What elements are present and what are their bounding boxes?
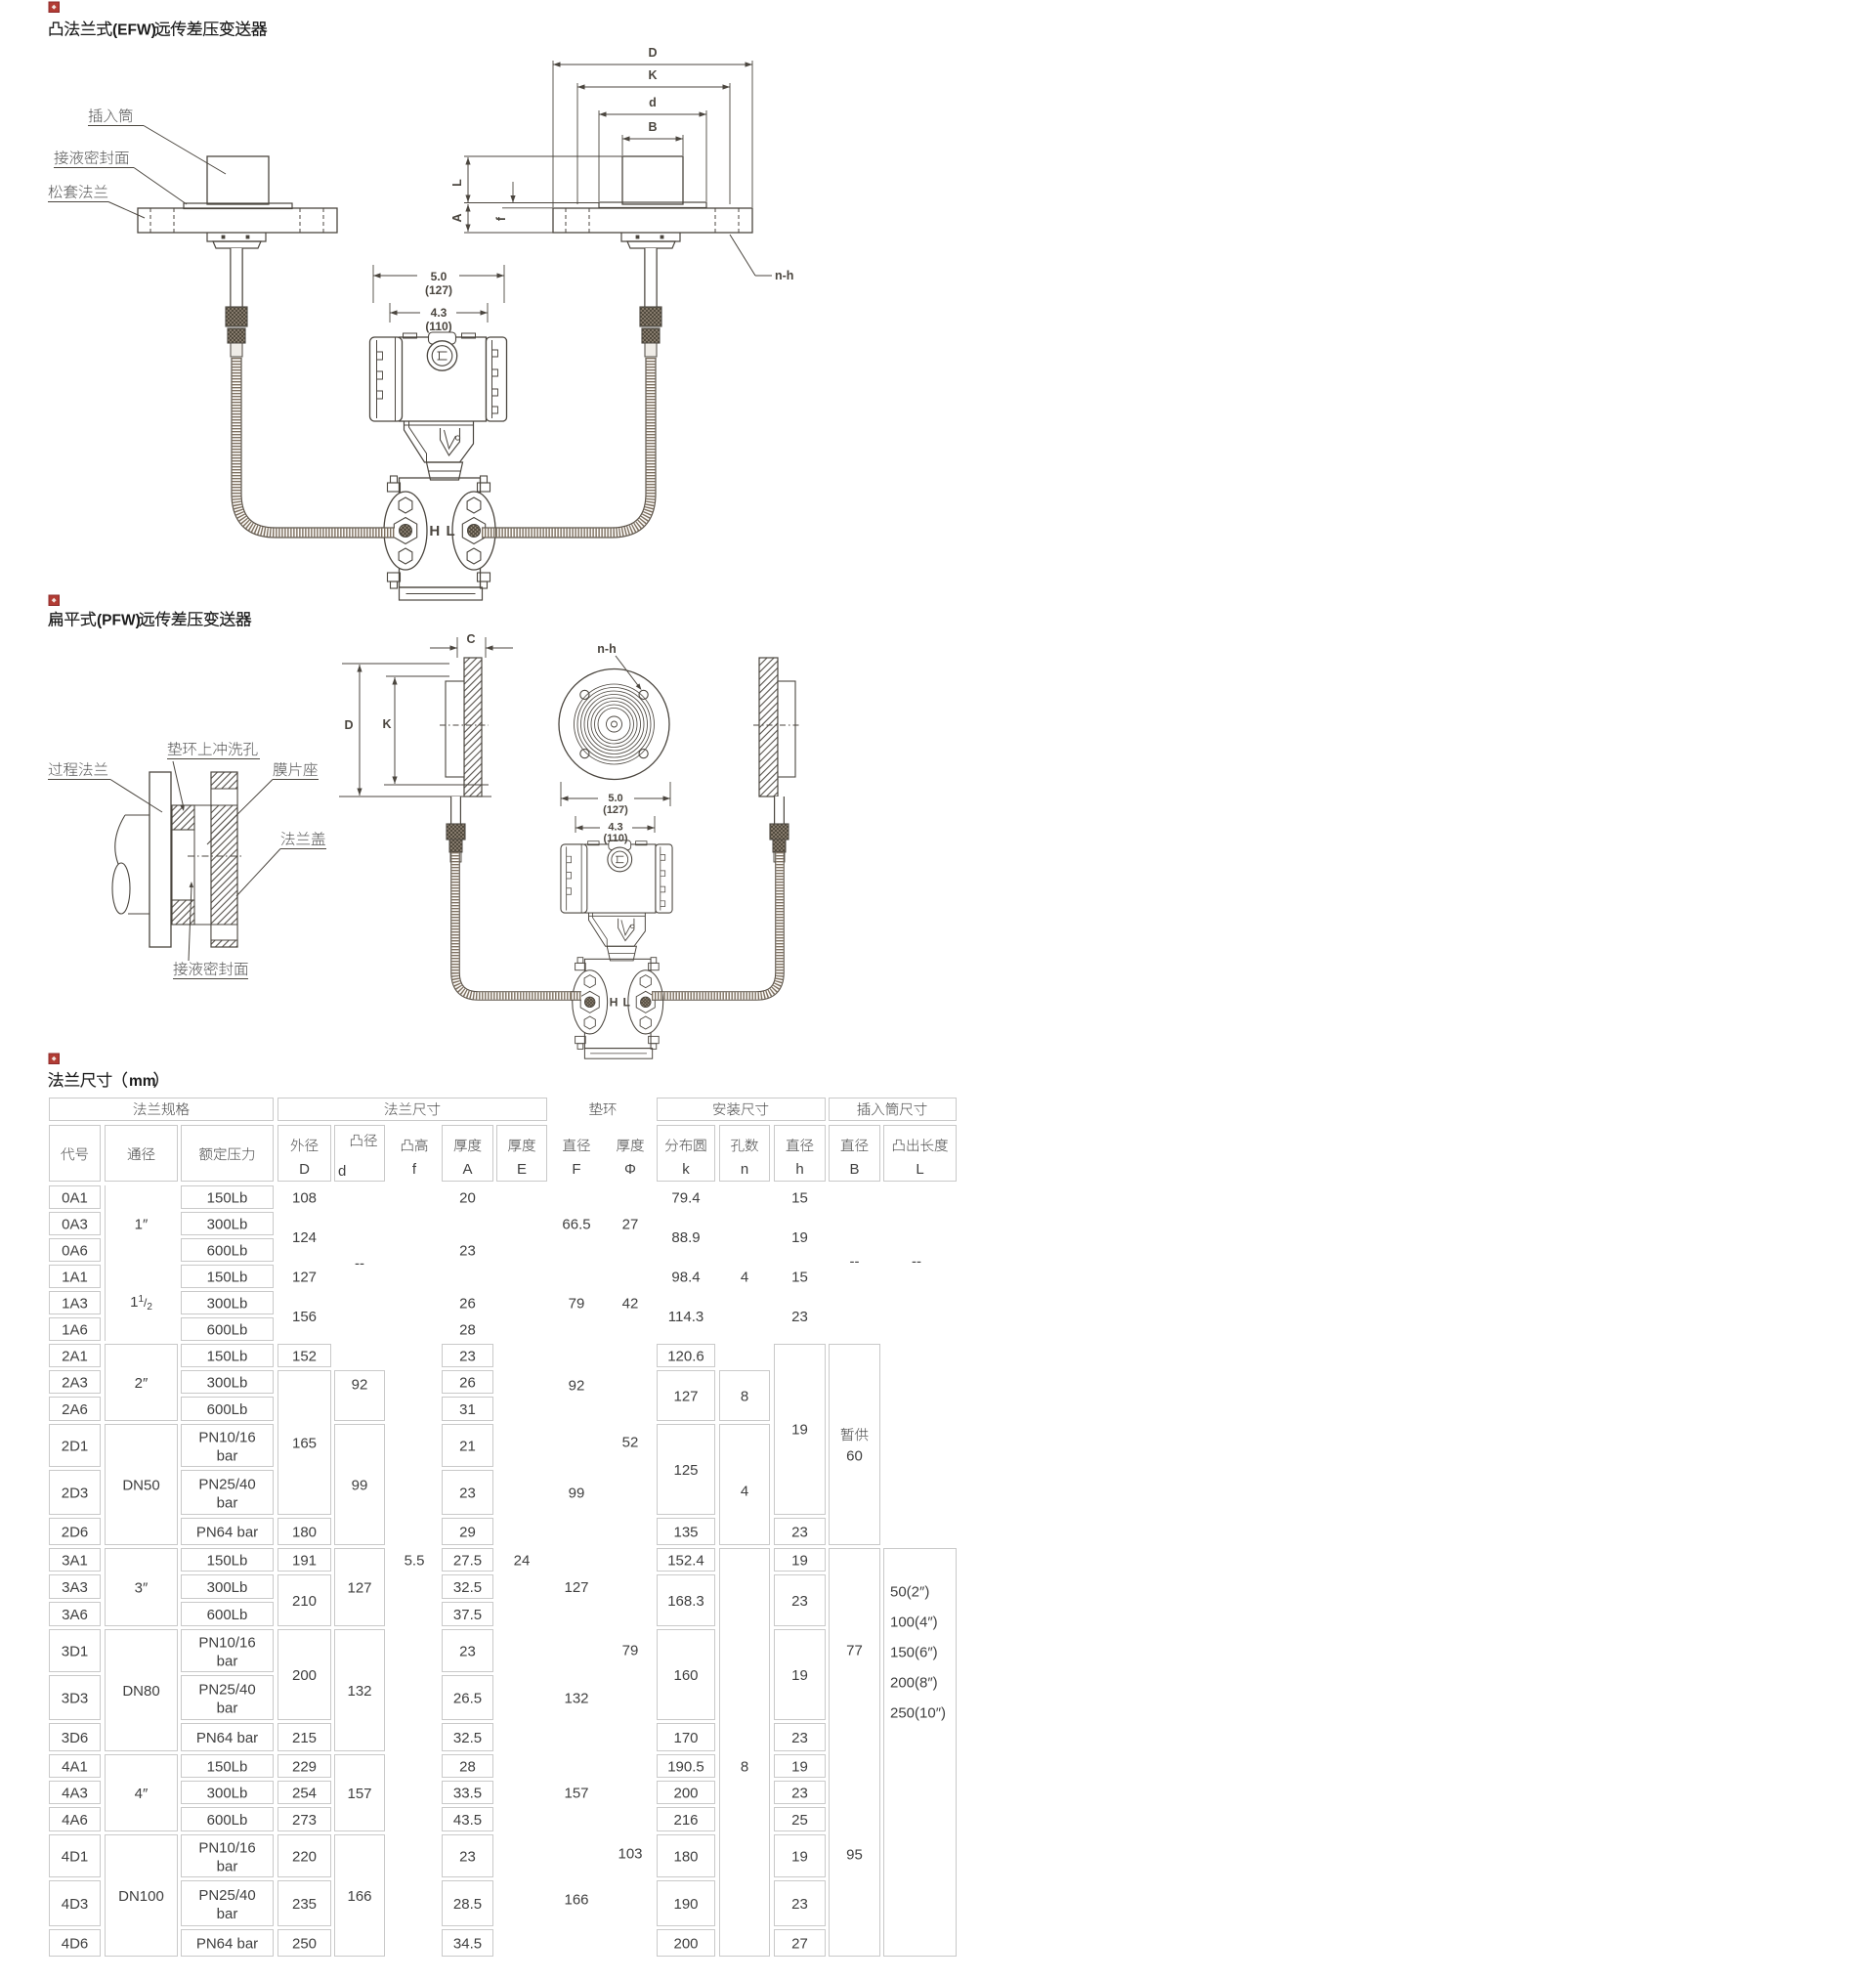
svg-text:152.4: 152.4 xyxy=(667,1552,704,1569)
svg-text:PN25/40: PN25/40 xyxy=(198,1681,255,1698)
svg-text:bar: bar xyxy=(217,1494,238,1511)
svg-text:4: 4 xyxy=(741,1269,748,1285)
svg-text:PN10/16: PN10/16 xyxy=(198,1429,255,1445)
svg-text:23: 23 xyxy=(459,1848,476,1865)
svg-text:Φ: Φ xyxy=(624,1161,636,1178)
svg-text:23: 23 xyxy=(791,1785,808,1801)
svg-text:3″: 3″ xyxy=(135,1579,149,1596)
svg-text:5.5: 5.5 xyxy=(405,1552,425,1569)
svg-text:98.4: 98.4 xyxy=(671,1269,700,1285)
svg-text:127: 127 xyxy=(673,1388,698,1404)
svg-text:H: H xyxy=(429,523,440,539)
svg-text:4A3: 4A3 xyxy=(62,1785,88,1801)
svg-text:168.3: 168.3 xyxy=(667,1593,704,1610)
svg-text:215: 215 xyxy=(292,1730,317,1746)
svg-text:92: 92 xyxy=(569,1377,585,1394)
svg-text:PN25/40: PN25/40 xyxy=(198,1887,255,1904)
svg-text:PN25/40: PN25/40 xyxy=(198,1476,255,1492)
svg-text:27: 27 xyxy=(622,1216,639,1232)
svg-text:23: 23 xyxy=(791,1309,808,1325)
svg-text:4D3: 4D3 xyxy=(62,1896,89,1913)
svg-text:4.3: 4.3 xyxy=(431,306,448,320)
svg-text:300Lb: 300Lb xyxy=(207,1374,248,1391)
svg-text:28: 28 xyxy=(459,1758,476,1775)
svg-text:d: d xyxy=(649,96,657,109)
svg-text:5.0: 5.0 xyxy=(608,793,622,804)
svg-text:150Lb: 150Lb xyxy=(207,1552,248,1569)
svg-text:92: 92 xyxy=(352,1376,368,1393)
svg-text:79: 79 xyxy=(622,1642,639,1658)
svg-text:60: 60 xyxy=(846,1447,863,1464)
svg-text:K: K xyxy=(382,717,391,731)
svg-text:600Lb: 600Lb xyxy=(207,1812,248,1829)
svg-text:mm: mm xyxy=(129,1073,156,1090)
svg-text:2A6: 2A6 xyxy=(62,1401,88,1418)
svg-text:L: L xyxy=(916,1161,923,1178)
svg-text:229: 229 xyxy=(292,1758,317,1775)
svg-text:E: E xyxy=(517,1161,527,1178)
svg-text:250: 250 xyxy=(292,1935,317,1952)
svg-text:B: B xyxy=(849,1161,859,1178)
svg-text:23: 23 xyxy=(791,1730,808,1746)
svg-text:21: 21 xyxy=(459,1438,476,1454)
svg-text:D: D xyxy=(299,1161,310,1178)
svg-text:n-h: n-h xyxy=(597,642,616,656)
svg-text:34.5: 34.5 xyxy=(453,1935,482,1952)
svg-text:19: 19 xyxy=(791,1229,808,1246)
svg-text:52: 52 xyxy=(622,1434,639,1450)
svg-text:--: -- xyxy=(912,1253,921,1270)
svg-text:15: 15 xyxy=(791,1269,808,1285)
svg-text:D: D xyxy=(648,46,657,60)
svg-text:127: 127 xyxy=(292,1269,317,1285)
svg-text:600Lb: 600Lb xyxy=(207,1242,248,1259)
svg-text:23: 23 xyxy=(459,1485,476,1501)
svg-text:600Lb: 600Lb xyxy=(207,1607,248,1623)
svg-text:n-h: n-h xyxy=(775,269,793,282)
svg-text:n: n xyxy=(741,1161,748,1178)
svg-text:L: L xyxy=(450,179,464,187)
svg-text:0A6: 0A6 xyxy=(62,1242,88,1259)
svg-text:31: 31 xyxy=(459,1401,476,1418)
svg-text:4D6: 4D6 xyxy=(62,1935,89,1952)
svg-text:bar: bar xyxy=(217,1906,238,1922)
svg-text:150(6″): 150(6″) xyxy=(890,1644,938,1660)
svg-text:27: 27 xyxy=(791,1935,808,1952)
svg-text:19: 19 xyxy=(791,1758,808,1775)
svg-text:28: 28 xyxy=(459,1321,476,1338)
svg-text:180: 180 xyxy=(673,1848,698,1865)
svg-text:0A1: 0A1 xyxy=(62,1189,88,1206)
svg-text:42: 42 xyxy=(622,1295,639,1312)
svg-text:125: 125 xyxy=(673,1462,698,1479)
svg-text:190: 190 xyxy=(673,1896,698,1913)
svg-text:23: 23 xyxy=(459,1242,476,1259)
svg-text:3A1: 3A1 xyxy=(62,1552,88,1569)
svg-text:3D1: 3D1 xyxy=(62,1643,89,1659)
svg-text:4A6: 4A6 xyxy=(62,1812,88,1829)
svg-text:D: D xyxy=(344,718,353,732)
svg-text:(110): (110) xyxy=(425,320,451,333)
svg-text:bar: bar xyxy=(217,1653,238,1669)
svg-text:DN50: DN50 xyxy=(122,1477,159,1493)
svg-text:15: 15 xyxy=(791,1189,808,1206)
svg-text:2″: 2″ xyxy=(135,1375,149,1392)
svg-text:216: 216 xyxy=(673,1812,698,1829)
svg-text:88.9: 88.9 xyxy=(671,1229,700,1246)
svg-text:19: 19 xyxy=(791,1848,808,1865)
svg-text:166: 166 xyxy=(347,1888,371,1905)
svg-text:B: B xyxy=(648,120,657,134)
svg-text:3D3: 3D3 xyxy=(62,1690,89,1706)
svg-text:33.5: 33.5 xyxy=(453,1785,482,1801)
svg-text:23: 23 xyxy=(459,1643,476,1659)
svg-text:160: 160 xyxy=(673,1667,698,1684)
svg-text:PN64 bar: PN64 bar xyxy=(196,1730,258,1746)
svg-text:600Lb: 600Lb xyxy=(207,1321,248,1338)
svg-text:25: 25 xyxy=(791,1812,808,1829)
svg-text:A: A xyxy=(462,1161,472,1178)
svg-text:132: 132 xyxy=(564,1690,588,1706)
svg-text:19: 19 xyxy=(791,1552,808,1569)
svg-text:4: 4 xyxy=(741,1483,748,1499)
svg-text:C: C xyxy=(466,632,475,646)
svg-text:28.5: 28.5 xyxy=(453,1896,482,1913)
svg-text:77: 77 xyxy=(846,1642,863,1658)
svg-text:DN100: DN100 xyxy=(118,1888,164,1905)
svg-text:2D3: 2D3 xyxy=(62,1485,89,1501)
svg-text:19: 19 xyxy=(791,1667,808,1684)
svg-text:PN64 bar: PN64 bar xyxy=(196,1935,258,1952)
svg-text:99: 99 xyxy=(352,1477,368,1493)
svg-text:191: 191 xyxy=(292,1552,317,1569)
svg-text:--: -- xyxy=(850,1253,860,1270)
svg-text:4″: 4″ xyxy=(135,1786,149,1802)
svg-text:PN10/16: PN10/16 xyxy=(198,1634,255,1651)
svg-text:200: 200 xyxy=(673,1935,698,1952)
svg-text:235: 235 xyxy=(292,1896,317,1913)
svg-text:273: 273 xyxy=(292,1812,317,1829)
svg-text:50(2″): 50(2″) xyxy=(890,1583,929,1600)
svg-text:1″: 1″ xyxy=(135,1216,149,1232)
svg-text:PN64 bar: PN64 bar xyxy=(196,1524,258,1540)
svg-text:79.4: 79.4 xyxy=(671,1189,700,1206)
svg-text:103: 103 xyxy=(618,1845,642,1862)
svg-text:120.6: 120.6 xyxy=(667,1348,704,1364)
svg-text:3A6: 3A6 xyxy=(62,1607,88,1623)
svg-text:37.5: 37.5 xyxy=(453,1607,482,1623)
svg-text:L: L xyxy=(447,523,455,539)
svg-text:23: 23 xyxy=(791,1524,808,1540)
svg-text:150Lb: 150Lb xyxy=(207,1758,248,1775)
svg-text:5.0: 5.0 xyxy=(431,270,448,283)
svg-text:156: 156 xyxy=(292,1309,317,1325)
svg-text:1A3: 1A3 xyxy=(62,1295,88,1312)
svg-text:A: A xyxy=(450,213,464,222)
svg-text:F: F xyxy=(572,1161,580,1178)
svg-text:135: 135 xyxy=(673,1524,698,1540)
svg-text:150Lb: 150Lb xyxy=(207,1189,248,1206)
svg-text:100(4″): 100(4″) xyxy=(890,1614,938,1630)
svg-text:PN10/16: PN10/16 xyxy=(198,1839,255,1856)
svg-text:124: 124 xyxy=(292,1229,317,1246)
svg-text:--: -- xyxy=(355,1255,364,1271)
svg-text:2D1: 2D1 xyxy=(62,1438,89,1454)
svg-text:23: 23 xyxy=(459,1348,476,1364)
svg-text:165: 165 xyxy=(292,1435,317,1451)
svg-text:210: 210 xyxy=(292,1593,317,1610)
svg-text:(110): (110) xyxy=(603,833,627,844)
svg-text:20: 20 xyxy=(459,1189,476,1206)
svg-text:600Lb: 600Lb xyxy=(207,1401,248,1418)
svg-text:4.3: 4.3 xyxy=(608,822,622,834)
svg-text:300Lb: 300Lb xyxy=(207,1579,248,1596)
svg-text:H: H xyxy=(610,995,618,1009)
svg-text:(EFW): (EFW) xyxy=(112,22,156,39)
svg-text:170: 170 xyxy=(673,1730,698,1746)
svg-text:254: 254 xyxy=(292,1785,317,1801)
svg-text:k: k xyxy=(682,1161,690,1178)
svg-text:150Lb: 150Lb xyxy=(207,1348,248,1364)
svg-text:200: 200 xyxy=(292,1667,317,1684)
svg-text:95: 95 xyxy=(846,1846,863,1863)
svg-text:DN80: DN80 xyxy=(122,1683,159,1700)
svg-text:26.5: 26.5 xyxy=(453,1690,482,1706)
svg-text:157: 157 xyxy=(347,1786,371,1802)
svg-text:h: h xyxy=(795,1161,803,1178)
svg-text:32.5: 32.5 xyxy=(453,1730,482,1746)
svg-text:d: d xyxy=(338,1163,346,1180)
svg-text:K: K xyxy=(648,68,657,82)
svg-text:4A1: 4A1 xyxy=(62,1758,88,1775)
svg-text:0A3: 0A3 xyxy=(62,1216,88,1232)
svg-text:L: L xyxy=(623,995,631,1009)
svg-text:(127): (127) xyxy=(425,283,452,297)
svg-text:32.5: 32.5 xyxy=(453,1579,482,1596)
svg-text:200(8″): 200(8″) xyxy=(890,1674,938,1691)
svg-text:152: 152 xyxy=(292,1348,317,1364)
svg-text:127: 127 xyxy=(564,1579,588,1596)
svg-text:bar: bar xyxy=(217,1700,238,1716)
svg-text:4D1: 4D1 xyxy=(62,1848,89,1865)
svg-text:bar: bar xyxy=(217,1858,238,1874)
svg-text:19: 19 xyxy=(791,1421,808,1438)
svg-text:300Lb: 300Lb xyxy=(207,1216,248,1232)
svg-text:2D6: 2D6 xyxy=(62,1524,89,1540)
svg-text:250(10″): 250(10″) xyxy=(890,1704,946,1721)
svg-text:2A1: 2A1 xyxy=(62,1348,88,1364)
svg-text:3A3: 3A3 xyxy=(62,1579,88,1596)
svg-text:3D6: 3D6 xyxy=(62,1730,89,1746)
svg-text:23: 23 xyxy=(791,1593,808,1610)
svg-text:127: 127 xyxy=(347,1579,371,1596)
svg-text:66.5: 66.5 xyxy=(562,1216,590,1232)
svg-text:180: 180 xyxy=(292,1524,317,1540)
svg-text:300Lb: 300Lb xyxy=(207,1295,248,1312)
svg-text:220: 220 xyxy=(292,1848,317,1865)
svg-text:29: 29 xyxy=(459,1524,476,1540)
svg-text:190.5: 190.5 xyxy=(667,1758,704,1775)
svg-text:8: 8 xyxy=(741,1388,748,1404)
svg-text:157: 157 xyxy=(564,1785,588,1801)
svg-text:26: 26 xyxy=(459,1374,476,1391)
svg-text:26: 26 xyxy=(459,1295,476,1312)
svg-text:(127): (127) xyxy=(603,804,628,816)
svg-text:1A6: 1A6 xyxy=(62,1321,88,1338)
svg-text:150Lb: 150Lb xyxy=(207,1269,248,1285)
svg-text:166: 166 xyxy=(564,1891,588,1908)
svg-text:43.5: 43.5 xyxy=(453,1812,482,1829)
svg-text:(PFW): (PFW) xyxy=(97,613,141,629)
svg-text:27.5: 27.5 xyxy=(453,1552,482,1569)
svg-text:108: 108 xyxy=(292,1189,317,1206)
svg-text:300Lb: 300Lb xyxy=(207,1785,248,1801)
svg-text:2A3: 2A3 xyxy=(62,1374,88,1391)
svg-text:79: 79 xyxy=(569,1295,585,1312)
svg-text:1A1: 1A1 xyxy=(62,1269,88,1285)
svg-text:8: 8 xyxy=(741,1758,748,1775)
svg-text:132: 132 xyxy=(347,1683,371,1700)
svg-text:24: 24 xyxy=(514,1552,531,1569)
svg-text:200: 200 xyxy=(673,1785,698,1801)
svg-text:23: 23 xyxy=(791,1896,808,1913)
svg-text:99: 99 xyxy=(569,1485,585,1501)
svg-text:bar: bar xyxy=(217,1447,238,1464)
svg-text:114.3: 114.3 xyxy=(668,1309,703,1325)
